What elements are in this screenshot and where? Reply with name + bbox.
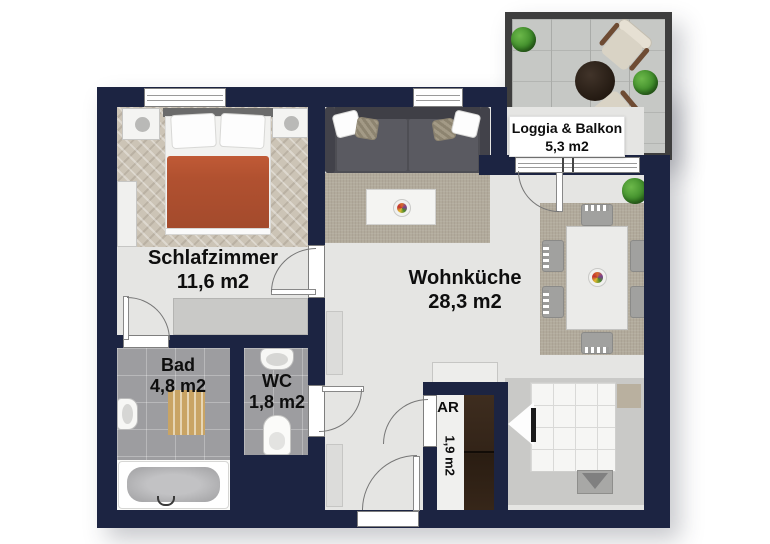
room-area: 4,8 m2 bbox=[121, 376, 235, 397]
lamp bbox=[284, 116, 299, 131]
fruit-bowl-dining-table bbox=[588, 268, 607, 287]
wall-balcony-connector bbox=[491, 87, 507, 160]
fruit-bowl-coffee-table bbox=[393, 199, 411, 217]
bathtub bbox=[118, 461, 229, 509]
living-window bbox=[413, 88, 463, 107]
wall-right bbox=[644, 155, 670, 528]
bathtub-faucet bbox=[157, 496, 175, 506]
room-area: 28,3 m2 bbox=[360, 291, 570, 315]
floor-plan: Schlafzimmer 11,6 m2 Wohnküche 28,3 m2 B… bbox=[0, 0, 770, 544]
bed-pillow-left bbox=[170, 113, 217, 149]
room-area: 5,3 m2 bbox=[510, 138, 624, 156]
room-name: Wohnküche bbox=[360, 267, 570, 291]
room-name: Loggia & Balkon bbox=[510, 120, 624, 138]
bed-footboard bbox=[165, 228, 271, 235]
bathroom-sink bbox=[117, 398, 138, 430]
kitchen-door-edge bbox=[531, 408, 536, 442]
sofa-pillow-pattern-left bbox=[354, 116, 379, 140]
label-schlafzimmer: Schlafzimmer 11,6 m2 bbox=[118, 247, 308, 294]
dining-chair-top bbox=[581, 204, 613, 226]
balcony-plant-1 bbox=[511, 27, 536, 52]
bedroom-window bbox=[144, 88, 226, 107]
wall-left bbox=[97, 87, 117, 528]
label-wc: WC 1,8 m2 bbox=[239, 371, 315, 413]
room-name: WC bbox=[239, 371, 315, 392]
sideboard bbox=[432, 362, 498, 383]
wc-sink bbox=[260, 348, 294, 370]
hall-cabinet-upper bbox=[326, 311, 343, 375]
label-wohnkueche: Wohnküche 28,3 m2 bbox=[360, 267, 570, 314]
room-area: 1,9 m2 bbox=[442, 430, 457, 482]
kitchen-floor-tiles bbox=[530, 382, 616, 472]
wall-bedroom-living bbox=[308, 107, 325, 510]
nightstand-right bbox=[272, 108, 308, 138]
hall-cabinet-lower bbox=[326, 444, 343, 507]
room-name: AR bbox=[433, 399, 463, 417]
wall-below-wc bbox=[230, 455, 325, 510]
bed bbox=[163, 108, 273, 234]
balcony-plant-2 bbox=[633, 70, 658, 95]
room-name: Bad bbox=[121, 355, 235, 376]
room-area: 1,8 m2 bbox=[239, 392, 315, 413]
sofa bbox=[325, 107, 490, 173]
room-area: 11,6 m2 bbox=[118, 271, 308, 295]
kitchen-counter-appliance bbox=[617, 384, 641, 408]
label-ar-area: 1,9 m2 bbox=[442, 430, 457, 482]
kitchen-sink bbox=[577, 470, 613, 494]
ar-cabinet bbox=[464, 395, 494, 510]
bed-pillow-right bbox=[219, 113, 266, 149]
wall-ar-right bbox=[494, 382, 508, 510]
label-ar-name: AR bbox=[433, 399, 463, 417]
nightstand-left bbox=[122, 108, 160, 140]
entrance-door bbox=[357, 511, 419, 527]
label-loggia: Loggia & Balkon 5,3 m2 bbox=[509, 116, 625, 157]
lamp bbox=[135, 117, 150, 132]
bed-blanket bbox=[167, 156, 269, 230]
bedroom-wardrobe bbox=[173, 298, 308, 335]
label-bad: Bad 4,8 m2 bbox=[121, 355, 235, 397]
room-name: Schlafzimmer bbox=[118, 247, 308, 271]
bedroom-dresser bbox=[117, 181, 137, 247]
dining-chair-bottom bbox=[581, 332, 613, 354]
wc-toilet bbox=[263, 415, 291, 455]
kitchen bbox=[505, 378, 644, 505]
